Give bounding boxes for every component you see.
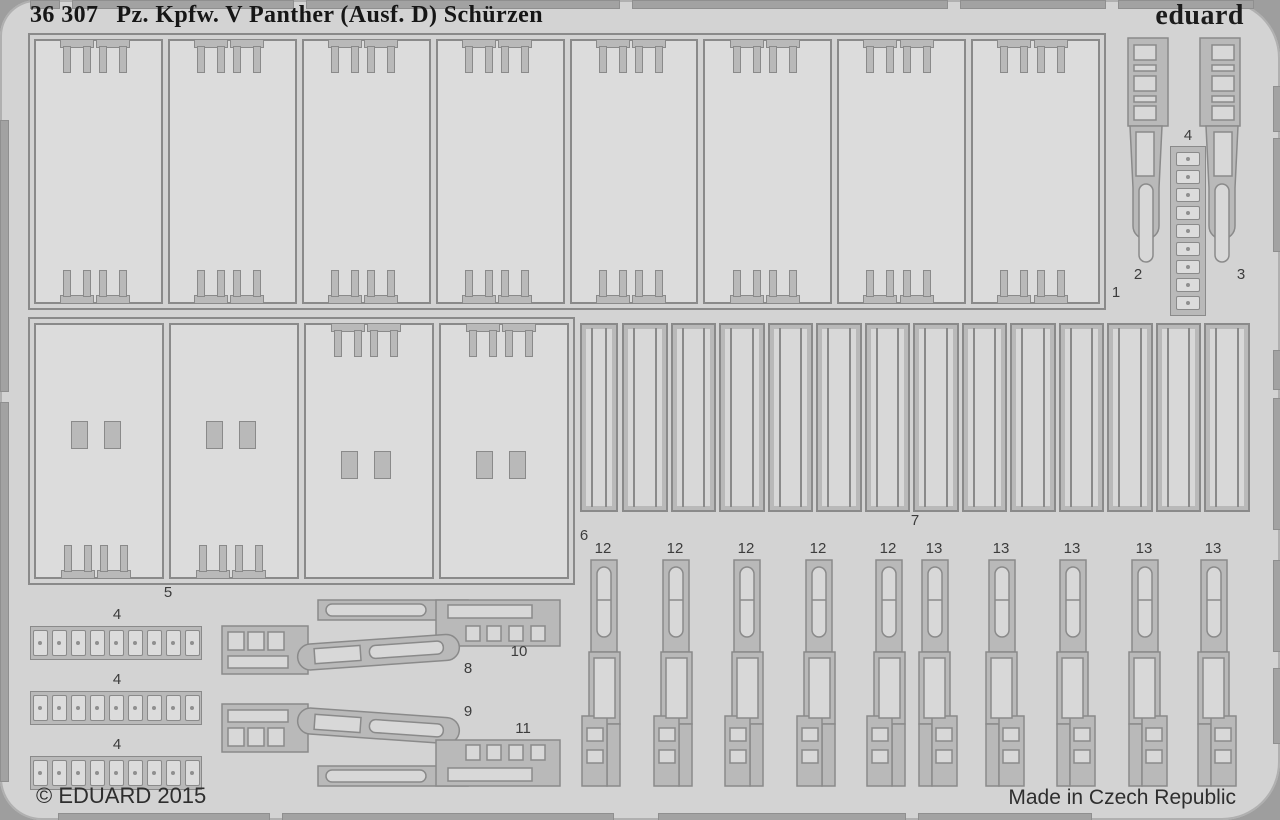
- panel-hole: [206, 421, 223, 449]
- fret-edge-rail: [1273, 398, 1280, 530]
- notch-leg: [1037, 270, 1045, 297]
- notch-leg: [521, 270, 529, 297]
- rivet-plate: [1176, 170, 1200, 184]
- part12-hanger: [795, 558, 843, 790]
- notch-leg: [367, 270, 375, 297]
- notch-leg: [789, 270, 797, 297]
- notch-leg: [753, 270, 761, 297]
- rivet-plate: [185, 630, 200, 656]
- part-label-1: 1: [1112, 284, 1120, 301]
- rivet-plate: [71, 695, 86, 721]
- notch-leg: [923, 270, 931, 297]
- panel-mount-notch: [997, 268, 1031, 304]
- notch-leg: [351, 46, 359, 73]
- part7-slat-module: [719, 323, 765, 512]
- rivet-plate: [109, 695, 124, 721]
- notch-leg: [253, 46, 261, 73]
- panel-mount-notch: [498, 268, 532, 304]
- rivet-plate: [109, 630, 124, 656]
- panel-mount-notch: [60, 268, 94, 304]
- notch-leg: [1037, 46, 1045, 73]
- part7-slat-module: [622, 323, 668, 512]
- fret-edge-rail: [1273, 560, 1280, 652]
- fret-edge-rail: [1273, 86, 1280, 132]
- notch-leg: [119, 270, 127, 297]
- part13-hanger: [911, 558, 959, 790]
- notch-leg: [903, 270, 911, 297]
- notch-leg: [63, 270, 71, 297]
- panel-mount-notch: [194, 39, 228, 75]
- notch-leg: [505, 330, 513, 357]
- panel-mount-notch: [331, 323, 365, 359]
- part7-slat-grid: [622, 323, 1250, 512]
- part-label-8: 8: [464, 660, 472, 677]
- notch-leg: [100, 545, 108, 572]
- part-label-4: 4: [1184, 127, 1192, 144]
- product-code: 36 307: [30, 2, 98, 28]
- part-label-13: 13: [1136, 540, 1153, 557]
- panel-mount-notch: [1034, 39, 1068, 75]
- part-label-9: 9: [464, 703, 472, 720]
- panel-hole: [476, 451, 493, 479]
- fret-edge-rail: [1273, 350, 1280, 390]
- part-label-12: 12: [810, 540, 827, 557]
- part1-panel-row: [28, 33, 1106, 310]
- rivet-plate: [166, 695, 181, 721]
- notch-leg: [63, 46, 71, 73]
- fret-edge-rail: [58, 813, 270, 820]
- notch-leg: [351, 270, 359, 297]
- part5-panel: [304, 323, 434, 579]
- notch-leg: [255, 545, 263, 572]
- brand-logo: eduard: [1155, 0, 1244, 32]
- fret-edge-rail: [632, 0, 948, 9]
- part-label-13: 13: [926, 540, 943, 557]
- part13-hanger: [978, 558, 1026, 790]
- panel-mount-notch: [364, 268, 398, 304]
- panel-mount-notch: [900, 268, 934, 304]
- notch-leg: [233, 270, 241, 297]
- panel-hole: [71, 421, 88, 449]
- notch-leg: [599, 270, 607, 297]
- notch-leg: [655, 270, 663, 297]
- notch-leg: [525, 330, 533, 357]
- part7-slat-module: [913, 323, 959, 512]
- notch-leg: [197, 270, 205, 297]
- notch-leg: [84, 545, 92, 572]
- part-label-6: 6: [580, 527, 588, 544]
- part7-slat-module: [1107, 323, 1153, 512]
- notch-leg: [1000, 46, 1008, 73]
- part13-hanger: [1190, 558, 1238, 790]
- panel-mount-notch: [498, 39, 532, 75]
- part4-rivet-strip-vertical: [1170, 146, 1206, 316]
- part7-slat-module: [671, 323, 717, 512]
- part-label-11: 11: [515, 720, 531, 737]
- panel-mount-notch: [997, 39, 1031, 75]
- part5-panel: [34, 323, 164, 579]
- part-label-4: 4: [113, 606, 121, 623]
- panel-mount-notch: [596, 268, 630, 304]
- panel-hole: [341, 451, 358, 479]
- notch-leg: [485, 46, 493, 73]
- notch-leg: [465, 46, 473, 73]
- panel-mount-notch: [730, 268, 764, 304]
- notch-leg: [521, 46, 529, 73]
- part-label-13: 13: [993, 540, 1010, 557]
- rivet-plate: [1176, 278, 1200, 292]
- fret-edge-rail: [658, 813, 906, 820]
- panel-mount-notch: [194, 268, 228, 304]
- rivet-plate: [52, 695, 67, 721]
- part4-rivet-strip: [30, 626, 202, 660]
- part1-panel: [302, 39, 431, 304]
- panel-hole: [509, 451, 526, 479]
- panel-mount-notch: [96, 39, 130, 75]
- notch-leg: [354, 330, 362, 357]
- panel-mount-notch: [766, 268, 800, 304]
- part5-panel-row: [28, 317, 575, 585]
- panel-mount-notch: [367, 323, 401, 359]
- rivet-plate: [52, 630, 67, 656]
- part-label-4: 4: [113, 736, 121, 753]
- rivet-plate: [1176, 260, 1200, 274]
- notch-leg: [469, 330, 477, 357]
- notch-leg: [331, 46, 339, 73]
- part2-hinge-strip: [1120, 36, 1176, 291]
- part6-slat-module: [580, 323, 618, 512]
- notch-leg: [866, 46, 874, 73]
- part1-panel: [971, 39, 1100, 304]
- notch-leg: [370, 330, 378, 357]
- notch-leg: [334, 330, 342, 357]
- panel-mount-notch: [502, 323, 536, 359]
- notch-leg: [219, 545, 227, 572]
- panel-mount-notch: [863, 268, 897, 304]
- rivet-plate: [128, 630, 143, 656]
- part7-slat-module: [768, 323, 814, 512]
- panel-mount-notch: [730, 39, 764, 75]
- rivet-plate: [1176, 188, 1200, 202]
- notch-leg: [235, 545, 243, 572]
- rivet-plate: [33, 695, 48, 721]
- part5-panel: [169, 323, 299, 579]
- part12-hanger: [580, 558, 628, 790]
- notch-leg: [733, 46, 741, 73]
- part7-slat-module: [1156, 323, 1202, 512]
- part13-hanger: [1121, 558, 1169, 790]
- rivet-plate: [90, 695, 105, 721]
- panel-mount-notch: [60, 39, 94, 75]
- part-label-7: 7: [911, 512, 919, 529]
- notch-leg: [387, 270, 395, 297]
- notch-leg: [923, 46, 931, 73]
- part12-hanger: [723, 558, 771, 790]
- part-label-12: 12: [667, 540, 684, 557]
- rivet-plate: [128, 695, 143, 721]
- panel-mount-notch: [364, 39, 398, 75]
- panel-mount-notch: [632, 39, 666, 75]
- notch-leg: [501, 46, 509, 73]
- fret-edge-rail: [0, 402, 9, 782]
- rivet-plate: [147, 695, 162, 721]
- notch-leg: [331, 270, 339, 297]
- fret-edge-rail: [282, 813, 614, 820]
- notch-leg: [501, 270, 509, 297]
- notch-leg: [199, 545, 207, 572]
- notch-leg: [489, 330, 497, 357]
- notch-leg: [599, 46, 607, 73]
- panel-mount-notch: [196, 543, 230, 579]
- panel-mount-notch: [328, 268, 362, 304]
- notch-leg: [120, 545, 128, 572]
- part1-panel: [570, 39, 699, 304]
- rivet-plate: [90, 630, 105, 656]
- panel-mount-notch: [230, 268, 264, 304]
- rivet-plate: [1176, 206, 1200, 220]
- part-label-12: 12: [595, 540, 612, 557]
- panel-mount-notch: [462, 268, 496, 304]
- part7-slat-module: [865, 323, 911, 512]
- panel-mount-notch: [900, 39, 934, 75]
- notch-leg: [83, 270, 91, 297]
- panel-mount-notch: [863, 39, 897, 75]
- copyright-text: © EDUARD 2015: [36, 783, 206, 809]
- rivet-plate: [1176, 224, 1200, 238]
- fret-edge-rail: [960, 0, 1106, 9]
- panel-mount-notch: [466, 323, 500, 359]
- notch-leg: [99, 46, 107, 73]
- part7-slat-module: [816, 323, 862, 512]
- rivet-plate: [1176, 242, 1200, 256]
- rivet-plate: [33, 630, 48, 656]
- notch-leg: [233, 46, 241, 73]
- notch-leg: [485, 270, 493, 297]
- part-label-13: 13: [1205, 540, 1222, 557]
- part-label-12: 12: [738, 540, 755, 557]
- panel-mount-notch: [462, 39, 496, 75]
- notch-leg: [866, 270, 874, 297]
- fret-edge-rail: [918, 813, 1092, 820]
- part7-slat-module: [1204, 323, 1250, 512]
- notch-leg: [1057, 270, 1065, 297]
- part5-panel: [439, 323, 569, 579]
- notch-leg: [465, 270, 473, 297]
- notch-leg: [1020, 270, 1028, 297]
- fret-edge-rail: [1273, 668, 1280, 744]
- panel-mount-notch: [230, 39, 264, 75]
- notch-leg: [1020, 46, 1028, 73]
- notch-leg: [217, 46, 225, 73]
- part-label-5: 5: [164, 584, 172, 601]
- notch-leg: [387, 46, 395, 73]
- made-in-text: Made in Czech Republic: [1008, 786, 1236, 810]
- notch-leg: [119, 46, 127, 73]
- part-label-13: 13: [1064, 540, 1081, 557]
- notch-leg: [769, 46, 777, 73]
- photoetch-sheet-photo: 36 307Pz. Kpfw. V Panther (Ausf. D) Schü…: [0, 0, 1280, 820]
- notch-leg: [769, 270, 777, 297]
- part1-panel: [34, 39, 163, 304]
- panel-mount-notch: [632, 268, 666, 304]
- notch-leg: [635, 270, 643, 297]
- panel-mount-notch: [96, 268, 130, 304]
- panel-mount-notch: [1034, 268, 1068, 304]
- part4-rivet-strip: [30, 691, 202, 725]
- notch-leg: [367, 46, 375, 73]
- notch-leg: [83, 46, 91, 73]
- notch-leg: [635, 46, 643, 73]
- rivet-plate: [71, 630, 86, 656]
- notch-leg: [217, 270, 225, 297]
- part8-bracket: [220, 622, 468, 684]
- rivet-plate: [185, 695, 200, 721]
- rivet-plate: [1176, 152, 1200, 166]
- part-label-2: 2: [1134, 266, 1142, 283]
- part1-panel: [436, 39, 565, 304]
- product-title: Pz. Kpfw. V Panther (Ausf. D) Schürzen: [116, 2, 543, 28]
- part12-hanger: [865, 558, 913, 790]
- notch-leg: [390, 330, 398, 357]
- notch-leg: [619, 46, 627, 73]
- panel-mount-notch: [97, 543, 131, 579]
- notch-leg: [886, 270, 894, 297]
- notch-leg: [655, 46, 663, 73]
- panel-hole: [104, 421, 121, 449]
- part1-panel: [168, 39, 297, 304]
- part-label-12: 12: [880, 540, 897, 557]
- notch-leg: [64, 545, 72, 572]
- notch-leg: [753, 46, 761, 73]
- fret-edge-rail: [0, 120, 9, 392]
- part-label-3: 3: [1237, 266, 1245, 283]
- header-title-line: 36 307Pz. Kpfw. V Panther (Ausf. D) Schü…: [30, 2, 543, 29]
- panel-mount-notch: [328, 39, 362, 75]
- notch-leg: [619, 270, 627, 297]
- part7-slat-module: [1010, 323, 1056, 512]
- panel-hole: [374, 451, 391, 479]
- part-label-10: 10: [511, 643, 528, 660]
- notch-leg: [789, 46, 797, 73]
- rivet-plate: [1176, 296, 1200, 310]
- rivet-plate: [147, 630, 162, 656]
- rivet-plate: [166, 630, 181, 656]
- notch-leg: [903, 46, 911, 73]
- panel-mount-notch: [61, 543, 95, 579]
- panel-mount-notch: [596, 39, 630, 75]
- panel-hole: [239, 421, 256, 449]
- part-label-4: 4: [113, 671, 121, 688]
- notch-leg: [253, 270, 261, 297]
- notch-leg: [197, 46, 205, 73]
- panel-mount-notch: [232, 543, 266, 579]
- notch-leg: [733, 270, 741, 297]
- part11-bracket: [316, 738, 562, 790]
- notch-leg: [99, 270, 107, 297]
- panel-mount-notch: [766, 39, 800, 75]
- notch-leg: [1057, 46, 1065, 73]
- fret-edge-rail: [1273, 138, 1280, 252]
- part1-panel: [837, 39, 966, 304]
- part7-slat-module: [1059, 323, 1105, 512]
- part13-hanger: [1049, 558, 1097, 790]
- part7-slat-module: [962, 323, 1008, 512]
- part12-hanger: [652, 558, 700, 790]
- notch-leg: [886, 46, 894, 73]
- part1-panel: [703, 39, 832, 304]
- notch-leg: [1000, 270, 1008, 297]
